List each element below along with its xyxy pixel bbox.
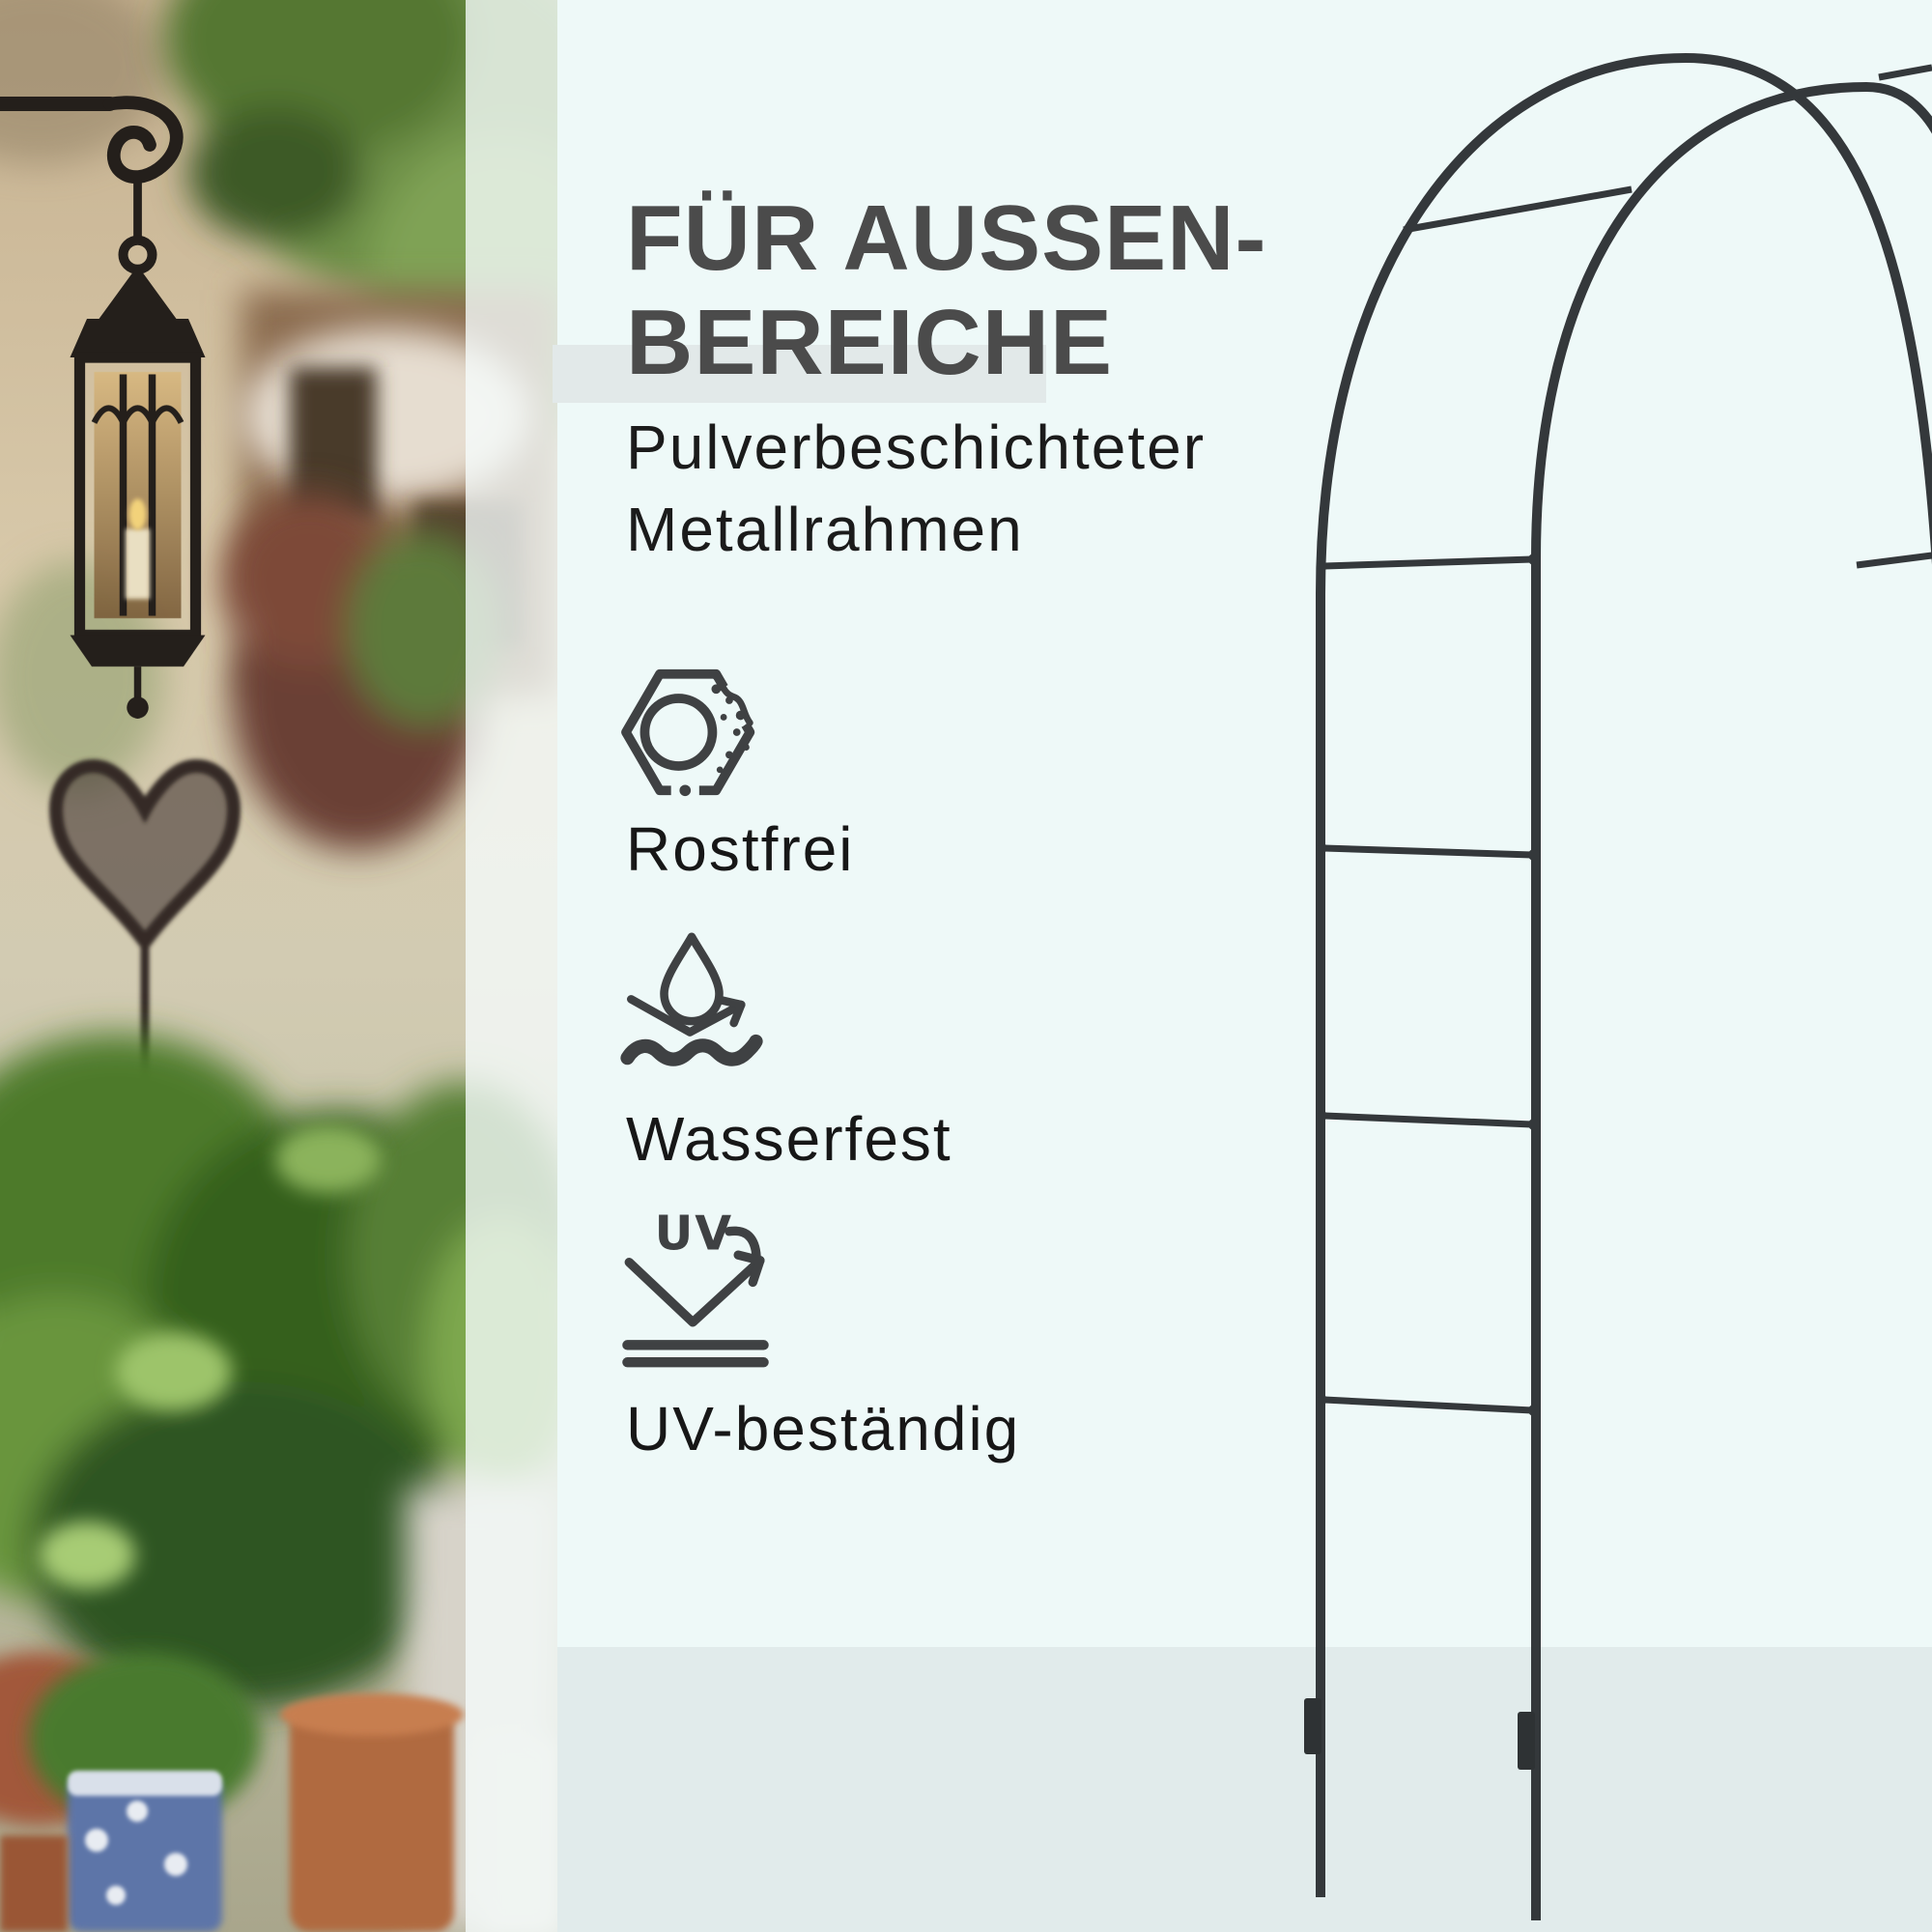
rustproof-nut-icon xyxy=(618,665,769,800)
photo-fade-overlay xyxy=(466,0,557,1932)
arch-crossbar xyxy=(1857,555,1932,565)
feature-rustproof: Rostfrei xyxy=(618,665,855,885)
page-title: FÜR AUSSEN-BEREICHE xyxy=(626,186,1266,395)
uv-resistant-icon: UV xyxy=(618,1206,773,1372)
floor-background xyxy=(557,1647,1932,1932)
product-infographic: FÜR AUSSEN-BEREICHE PulverbeschichteterM… xyxy=(0,0,1932,1932)
feature-waterproof: Wasserfest xyxy=(618,929,952,1175)
arch-crossbar xyxy=(1879,68,1932,77)
arch-rung xyxy=(1324,1116,1532,1124)
subtitle: PulverbeschichteterMetallrahmen xyxy=(626,407,1206,571)
title-line-1: FÜR AUSSEN- xyxy=(626,186,1266,290)
arch-crossbar xyxy=(1404,189,1632,230)
arch-rung xyxy=(1324,848,1532,855)
water-repellent-icon xyxy=(618,929,765,1082)
uv-icon-text: UV xyxy=(655,1207,733,1262)
feature-label: Rostfrei xyxy=(626,813,855,885)
arch-back-frame xyxy=(1536,87,1932,1920)
arch-front-frame xyxy=(1321,58,1932,1897)
title-line-2: BEREICHE xyxy=(626,291,1113,394)
feature-label: UV-beständig xyxy=(626,1393,1020,1464)
feature-label: Wasserfest xyxy=(626,1103,952,1175)
subtitle-line-1: Pulverbeschichteter xyxy=(626,412,1206,482)
arch-rung xyxy=(1324,559,1532,566)
feature-uv-resistant: UV UV-beständig xyxy=(618,1206,1020,1464)
subtitle-line-2: Metallrahmen xyxy=(626,495,1024,564)
arch-rung xyxy=(1324,1400,1532,1410)
